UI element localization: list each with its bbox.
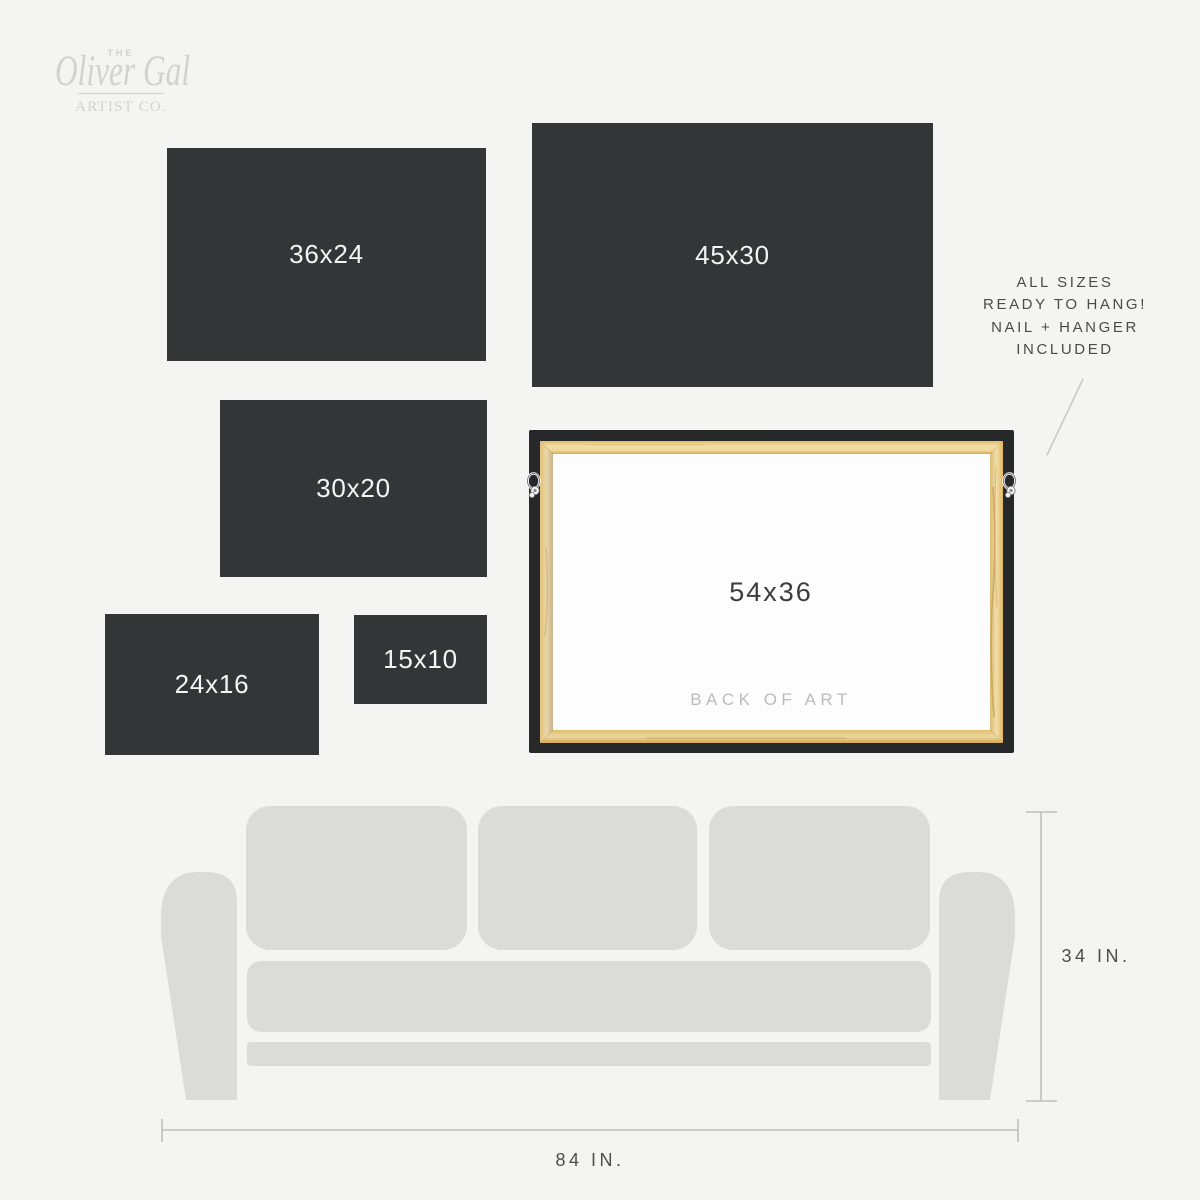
svg-text:54x36: 54x36 [729,577,813,607]
svg-text:Oliver Gal: Oliver Gal [55,47,190,95]
svg-text:BACK OF ART: BACK OF ART [690,690,852,709]
svg-text:ARTIST CO.: ARTIST CO. [75,99,167,115]
